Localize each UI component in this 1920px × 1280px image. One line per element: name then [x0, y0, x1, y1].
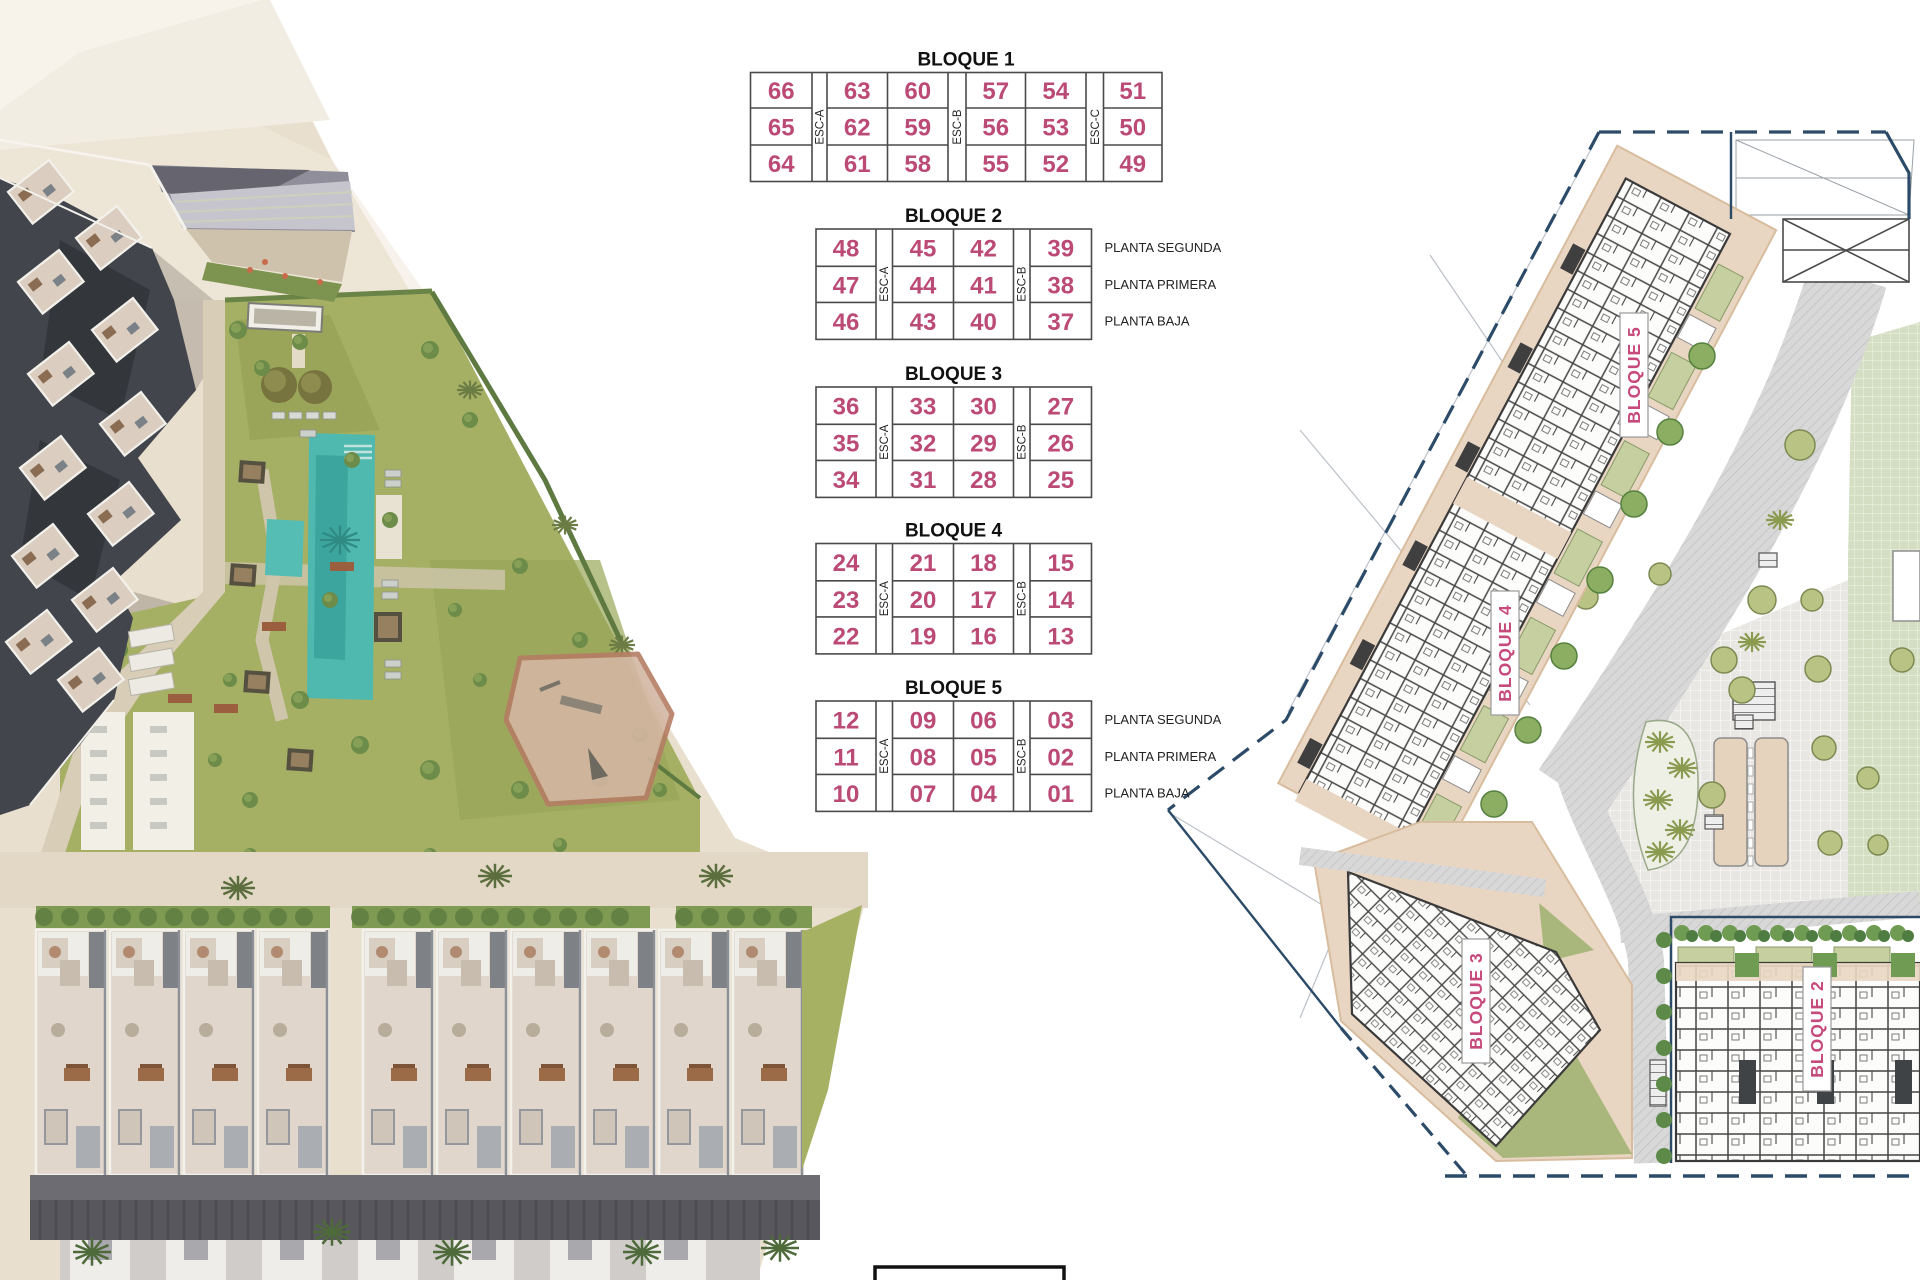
svg-text:BLOQUE 3: BLOQUE 3 [905, 364, 1002, 385]
svg-text:50: 50 [1119, 115, 1146, 142]
svg-text:ESC-A: ESC-A [879, 738, 891, 773]
svg-text:43: 43 [910, 309, 937, 336]
svg-text:BLOQUE 4: BLOQUE 4 [1495, 604, 1515, 701]
svg-text:39: 39 [1047, 236, 1074, 263]
svg-text:40: 40 [970, 309, 997, 336]
svg-text:49: 49 [1119, 151, 1146, 178]
svg-text:24: 24 [833, 550, 860, 577]
svg-text:34: 34 [833, 467, 860, 494]
svg-text:17: 17 [970, 587, 997, 614]
svg-text:46: 46 [833, 309, 860, 336]
svg-text:ESC-A: ESC-A [879, 581, 891, 616]
svg-text:06: 06 [970, 708, 997, 735]
svg-text:07: 07 [910, 781, 937, 808]
svg-text:ESC-B: ESC-B [1017, 738, 1029, 773]
svg-text:BLOQUE 2: BLOQUE 2 [905, 206, 1002, 227]
svg-text:04: 04 [970, 781, 997, 808]
svg-text:08: 08 [910, 744, 937, 771]
svg-text:ESC-B: ESC-B [1017, 581, 1029, 616]
svg-text:15: 15 [1047, 550, 1074, 577]
svg-text:29: 29 [970, 430, 997, 457]
svg-text:ESC-A: ESC-A [815, 109, 827, 144]
svg-text:13: 13 [1047, 623, 1074, 650]
svg-text:18: 18 [970, 550, 997, 577]
svg-text:62: 62 [844, 115, 871, 142]
svg-text:PLANTA BAJA: PLANTA BAJA [1105, 313, 1190, 328]
svg-text:11: 11 [833, 744, 858, 771]
svg-text:05: 05 [970, 744, 997, 771]
svg-text:PLANTA SEGUNDA: PLANTA SEGUNDA [1105, 240, 1222, 255]
svg-text:ESC-A: ESC-A [879, 266, 891, 301]
svg-text:BLOQUE 4: BLOQUE 4 [905, 521, 1003, 542]
svg-text:ESC-B: ESC-B [952, 109, 964, 144]
svg-text:09: 09 [910, 708, 937, 735]
svg-text:14: 14 [1047, 587, 1074, 614]
svg-text:ESC-B: ESC-B [1017, 424, 1029, 459]
svg-text:21: 21 [910, 550, 937, 577]
svg-text:54: 54 [1042, 78, 1069, 105]
svg-text:37: 37 [1047, 309, 1074, 336]
svg-text:02: 02 [1047, 744, 1074, 771]
svg-text:42: 42 [970, 236, 997, 263]
svg-text:ESC-B: ESC-B [1017, 266, 1029, 301]
svg-text:19: 19 [910, 623, 937, 650]
svg-text:16: 16 [970, 623, 997, 650]
svg-text:63: 63 [844, 78, 871, 105]
svg-text:PLANTA PRIMERA: PLANTA PRIMERA [1105, 749, 1217, 764]
svg-text:58: 58 [904, 151, 931, 178]
svg-text:12: 12 [833, 708, 860, 735]
svg-text:56: 56 [982, 115, 1009, 142]
svg-text:36: 36 [833, 394, 860, 421]
svg-text:65: 65 [768, 115, 795, 142]
svg-text:41: 41 [970, 272, 997, 299]
svg-text:31: 31 [910, 467, 937, 494]
svg-text:48: 48 [833, 236, 860, 263]
svg-text:52: 52 [1042, 151, 1069, 178]
svg-text:PLANTA SEGUNDA: PLANTA SEGUNDA [1105, 712, 1222, 727]
svg-text:25: 25 [1047, 467, 1074, 494]
svg-text:10: 10 [833, 781, 860, 808]
svg-text:35: 35 [833, 430, 860, 457]
svg-text:47: 47 [833, 272, 860, 299]
svg-text:BLOQUE 3: BLOQUE 3 [1466, 952, 1486, 1049]
svg-text:30: 30 [970, 394, 997, 421]
svg-text:57: 57 [982, 78, 1009, 105]
svg-text:64: 64 [768, 151, 795, 178]
svg-text:32: 32 [910, 430, 937, 457]
svg-text:45: 45 [910, 236, 937, 263]
svg-text:26: 26 [1047, 430, 1074, 457]
svg-text:38: 38 [1047, 272, 1074, 299]
svg-text:BLOQUE 5: BLOQUE 5 [905, 678, 1003, 699]
svg-text:28: 28 [970, 467, 997, 494]
svg-text:59: 59 [904, 115, 931, 142]
svg-text:ESC-C: ESC-C [1090, 109, 1102, 145]
svg-text:51: 51 [1119, 78, 1146, 105]
svg-text:PLANTA PRIMERA: PLANTA PRIMERA [1105, 277, 1217, 292]
svg-text:60: 60 [904, 78, 931, 105]
svg-text:44: 44 [910, 272, 937, 299]
svg-text:BLOQUE 2: BLOQUE 2 [1807, 980, 1827, 1077]
svg-text:27: 27 [1047, 394, 1074, 421]
svg-text:53: 53 [1042, 115, 1069, 142]
svg-text:33: 33 [910, 394, 937, 421]
svg-text:PLANTA BAJA: PLANTA BAJA [1105, 785, 1190, 800]
svg-text:BLOQUE 5: BLOQUE 5 [1624, 326, 1644, 423]
svg-text:61: 61 [844, 151, 871, 178]
svg-text:66: 66 [768, 78, 795, 105]
svg-text:BLOQUE 1: BLOQUE 1 [917, 50, 1015, 71]
svg-text:01: 01 [1047, 781, 1074, 808]
svg-text:20: 20 [910, 587, 937, 614]
svg-text:55: 55 [982, 151, 1009, 178]
svg-text:ESC-A: ESC-A [879, 424, 891, 459]
svg-text:03: 03 [1047, 708, 1074, 735]
svg-text:23: 23 [833, 587, 860, 614]
svg-text:22: 22 [833, 623, 860, 650]
